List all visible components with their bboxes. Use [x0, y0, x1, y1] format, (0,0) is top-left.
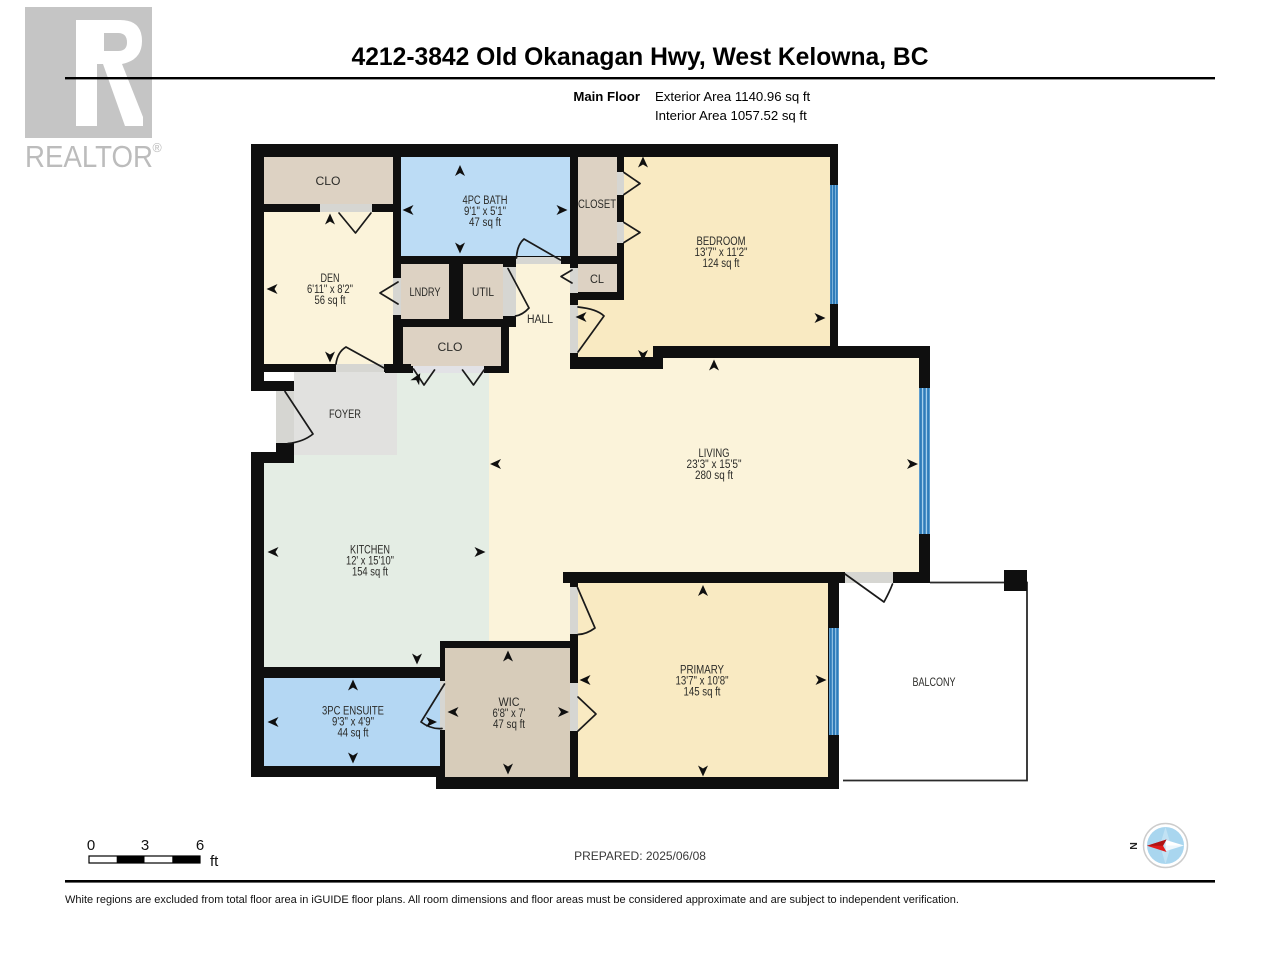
svg-text:CLOSET: CLOSET — [578, 197, 616, 211]
svg-text:44 sq ft: 44 sq ft — [338, 726, 369, 740]
svg-text:Exterior Area 1140.96 sq ft: Exterior Area 1140.96 sq ft — [655, 89, 811, 104]
svg-text:4212-3842 Old Okanagan Hwy, We: 4212-3842 Old Okanagan Hwy, West Kelowna… — [352, 44, 929, 71]
svg-text:HALL: HALL — [527, 312, 553, 326]
svg-text:REALTOR: REALTOR — [25, 140, 153, 174]
svg-text:ft: ft — [210, 853, 219, 870]
svg-text:Interior Area 1057.52 sq ft: Interior Area 1057.52 sq ft — [655, 108, 807, 123]
svg-text:280 sq ft: 280 sq ft — [695, 468, 734, 482]
svg-text:145 sq ft: 145 sq ft — [684, 685, 721, 699]
svg-text:FOYER: FOYER — [329, 407, 361, 421]
svg-text:0: 0 — [87, 837, 95, 854]
svg-text:47 sq ft: 47 sq ft — [493, 717, 526, 731]
svg-text:154 sq ft: 154 sq ft — [352, 565, 388, 579]
svg-text:UTIL: UTIL — [472, 285, 494, 299]
svg-text:47 sq ft: 47 sq ft — [469, 215, 502, 229]
svg-text:White regions are excluded fro: White regions are excluded from total fl… — [65, 894, 959, 906]
svg-text:CL: CL — [590, 272, 604, 286]
svg-text:CLO: CLO — [316, 174, 341, 188]
svg-text:CLO: CLO — [438, 340, 463, 354]
svg-text:N: N — [1128, 842, 1140, 850]
svg-text:BALCONY: BALCONY — [913, 675, 956, 689]
svg-text:PREPARED: 2025/06/08: PREPARED: 2025/06/08 — [574, 849, 706, 863]
svg-text:®: ® — [153, 141, 163, 155]
svg-text:3: 3 — [141, 837, 149, 854]
svg-text:6: 6 — [196, 837, 204, 854]
svg-text:56 sq ft: 56 sq ft — [315, 293, 346, 307]
svg-text:Main Floor: Main Floor — [573, 89, 640, 104]
svg-text:LNDRY: LNDRY — [410, 285, 441, 299]
svg-text:124 sq ft: 124 sq ft — [703, 256, 740, 270]
